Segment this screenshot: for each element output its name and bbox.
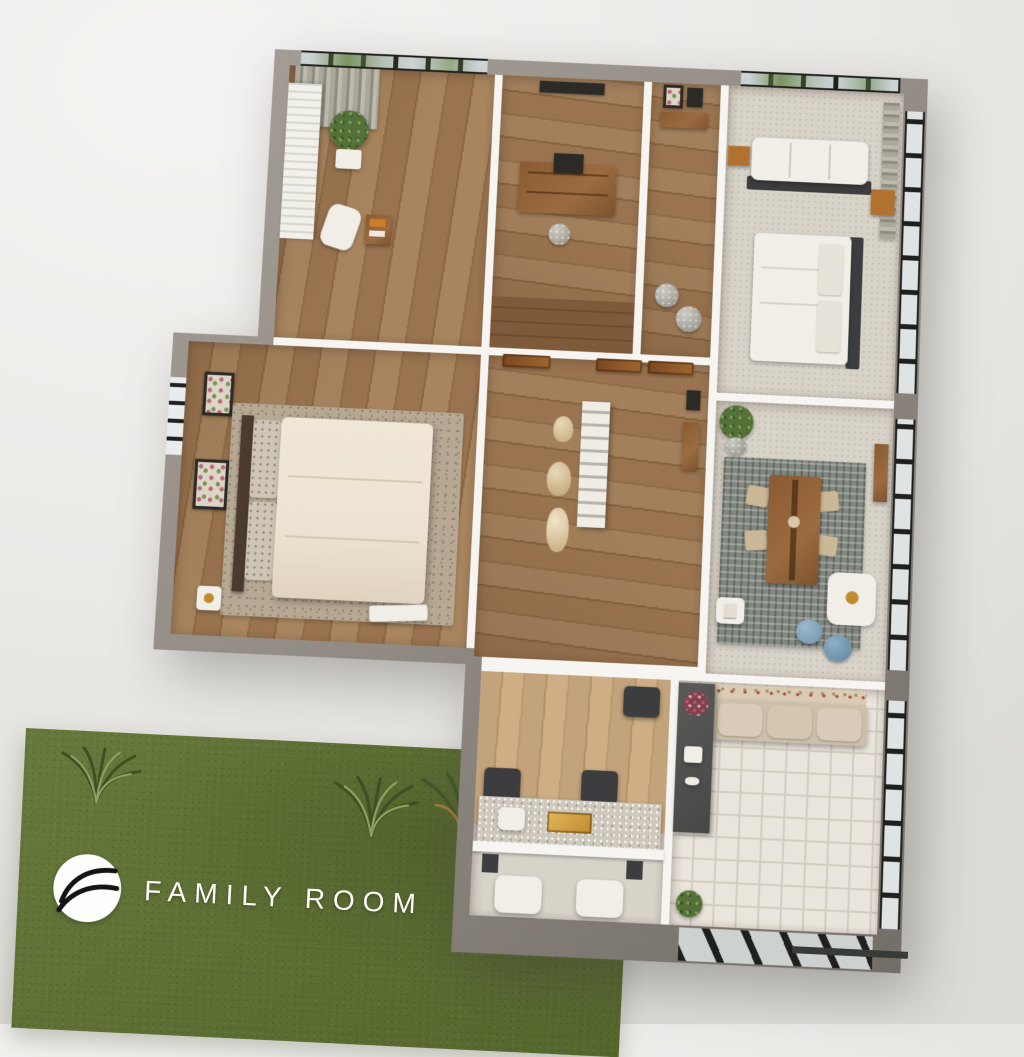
wood-cabinet <box>873 444 889 503</box>
cushion-seam <box>789 143 792 178</box>
window-glass <box>890 419 914 671</box>
art-frame <box>202 372 235 417</box>
dark-ottoman <box>580 770 618 805</box>
desk-stool <box>548 223 571 246</box>
potted-plant <box>675 890 703 918</box>
desk-decor <box>553 153 583 174</box>
console-decor <box>498 807 525 831</box>
gold-centerpiece <box>547 811 593 834</box>
wood-steps <box>489 296 634 354</box>
wooden-door <box>596 358 642 373</box>
picture-frame <box>687 88 704 108</box>
room-lounge <box>669 680 885 934</box>
nightstand <box>870 189 895 215</box>
room-bedroom <box>717 86 904 401</box>
coffee-machine <box>684 746 703 763</box>
speaker <box>626 860 643 879</box>
curtain <box>879 102 899 239</box>
nightstand <box>728 146 750 166</box>
room-dining <box>706 400 894 681</box>
console-table <box>660 111 708 129</box>
bed <box>750 233 852 365</box>
gold-cushion-medallion <box>845 591 859 605</box>
bed-bench <box>369 604 428 622</box>
room-media <box>469 671 671 924</box>
table-lamp <box>204 593 215 604</box>
desk-edge <box>527 191 608 197</box>
artwork <box>666 88 681 106</box>
house-shadow-wrap <box>0 0 1024 1024</box>
room-home-office <box>489 75 644 354</box>
cup <box>685 777 700 786</box>
books <box>369 219 385 228</box>
duvet-fold <box>288 475 422 483</box>
speaker <box>482 854 499 873</box>
plant-pot <box>724 437 747 456</box>
side-table <box>365 215 392 246</box>
tall-vase <box>546 507 570 552</box>
art-frame <box>192 459 229 511</box>
blue-floor-cushion <box>823 634 852 662</box>
pouf <box>675 306 702 333</box>
pouf <box>654 283 679 308</box>
ladder-shelf <box>577 401 611 528</box>
wooden-door <box>502 354 550 369</box>
potted-plant <box>719 405 754 440</box>
white-sofa <box>751 137 869 185</box>
cushion-seam <box>828 144 831 179</box>
wooden-desk <box>518 161 617 216</box>
room-hallway <box>474 355 710 667</box>
white-armchair <box>575 879 623 919</box>
shelf-unit <box>673 682 715 833</box>
dining-chair <box>744 530 767 551</box>
dark-ottoman <box>623 686 661 718</box>
seat-cushion <box>767 705 813 740</box>
dining-chair <box>745 484 770 508</box>
table-runner <box>789 480 799 581</box>
beige-sofa <box>711 698 868 746</box>
seat-cushion <box>816 707 862 742</box>
plant-pot <box>335 149 362 170</box>
room-master-bedroom <box>170 341 481 648</box>
dining-table <box>765 475 821 586</box>
hall-console <box>682 422 700 471</box>
table-decor <box>788 516 800 529</box>
room-study <box>274 65 495 347</box>
duvet-fold <box>285 535 419 543</box>
white-armchair <box>494 875 543 915</box>
art-card <box>724 603 737 618</box>
side-table <box>716 597 745 625</box>
vase <box>553 416 574 443</box>
flower-arrangement <box>684 691 709 717</box>
artwork <box>205 375 231 414</box>
floorplan-scene: { "branding": { "label": "FAMILY ROOM", … <box>0 0 1024 1024</box>
seat-cushion <box>717 703 763 738</box>
wooden-door <box>648 361 694 376</box>
picture-frame <box>663 84 684 108</box>
house-floorplan <box>135 45 928 973</box>
room-entry <box>640 82 721 358</box>
picture-frame <box>686 390 701 410</box>
white-armchair <box>826 572 876 627</box>
bed <box>271 417 433 604</box>
window-glass <box>898 111 923 394</box>
vase <box>546 461 572 496</box>
art-frame <box>539 81 604 96</box>
nightstand <box>196 585 222 610</box>
books <box>369 230 385 237</box>
window-blinds <box>280 83 323 240</box>
window-glass <box>881 700 904 929</box>
potted-plant <box>328 110 370 151</box>
office-chair <box>318 201 364 252</box>
artwork <box>195 462 226 507</box>
pillow <box>818 244 844 296</box>
pillow <box>816 300 842 352</box>
